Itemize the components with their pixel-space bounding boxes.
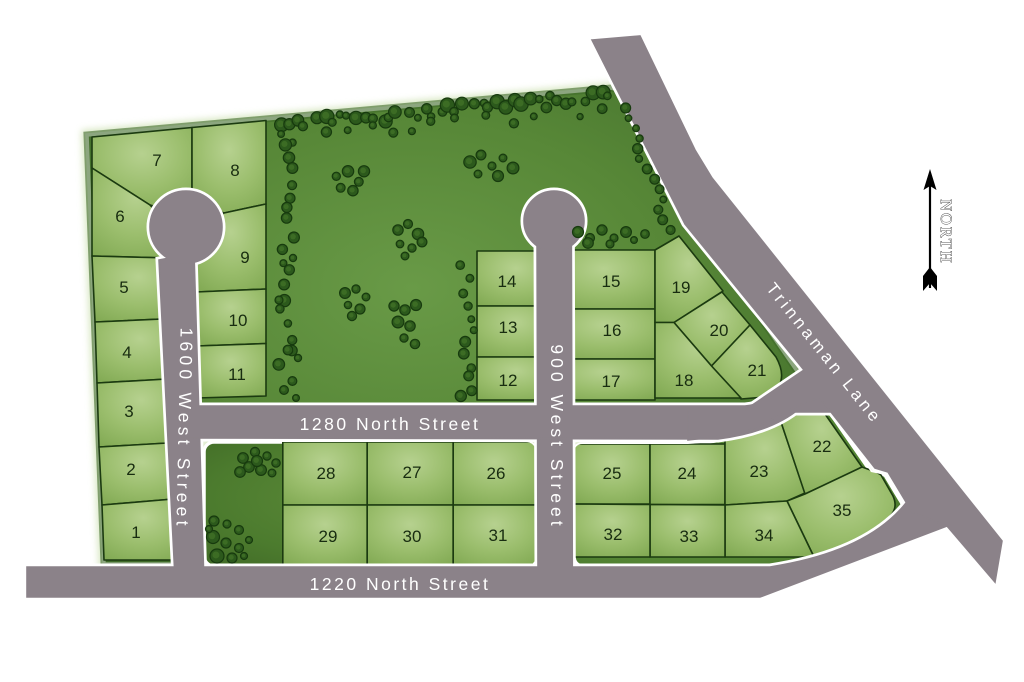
- svg-text:26: 26: [487, 464, 506, 483]
- svg-text:NORTH: NORTH: [937, 199, 954, 264]
- svg-text:34: 34: [755, 526, 774, 545]
- svg-text:31: 31: [489, 526, 508, 545]
- svg-text:1220 North Street: 1220 North Street: [310, 574, 491, 594]
- svg-text:22: 22: [813, 437, 832, 456]
- svg-text:17: 17: [602, 372, 621, 391]
- svg-text:1600 West Street: 1600 West Street: [172, 327, 196, 529]
- svg-text:2: 2: [126, 460, 135, 479]
- svg-text:33: 33: [680, 527, 699, 546]
- svg-text:1: 1: [131, 523, 140, 542]
- svg-text:29: 29: [319, 527, 338, 546]
- svg-text:3: 3: [124, 402, 133, 421]
- svg-text:14: 14: [498, 272, 517, 291]
- svg-text:8: 8: [230, 161, 239, 180]
- svg-text:30: 30: [403, 527, 422, 546]
- svg-text:18: 18: [675, 371, 694, 390]
- svg-text:28: 28: [317, 464, 336, 483]
- svg-text:11: 11: [228, 365, 246, 384]
- svg-text:9: 9: [240, 248, 249, 267]
- svg-text:27: 27: [403, 463, 422, 482]
- svg-text:24: 24: [678, 464, 697, 483]
- svg-text:10: 10: [229, 311, 248, 330]
- svg-text:20: 20: [710, 321, 729, 340]
- svg-text:13: 13: [499, 318, 518, 337]
- svg-text:7: 7: [152, 151, 161, 170]
- svg-text:12: 12: [499, 371, 518, 390]
- svg-text:21: 21: [748, 361, 767, 380]
- svg-text:15: 15: [602, 272, 621, 291]
- svg-text:6: 6: [115, 207, 124, 226]
- svg-text:4: 4: [122, 343, 131, 362]
- svg-text:900 West Street: 900 West Street: [547, 344, 567, 529]
- svg-text:23: 23: [750, 462, 769, 481]
- svg-text:25: 25: [603, 464, 622, 483]
- svg-text:35: 35: [833, 501, 852, 520]
- svg-text:5: 5: [119, 278, 128, 297]
- svg-text:1280 North Street: 1280 North Street: [300, 414, 481, 434]
- svg-text:32: 32: [604, 525, 623, 544]
- svg-text:19: 19: [672, 278, 691, 297]
- svg-text:16: 16: [603, 321, 622, 340]
